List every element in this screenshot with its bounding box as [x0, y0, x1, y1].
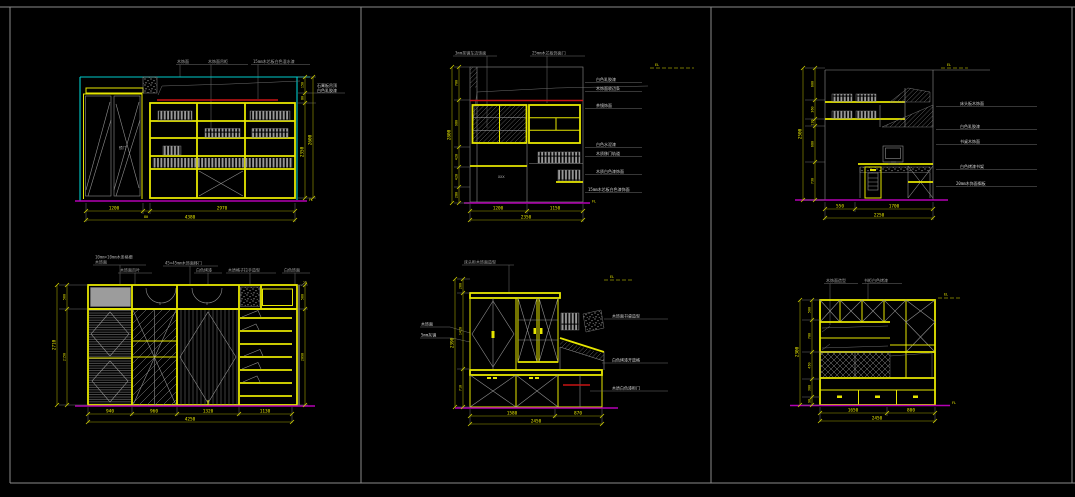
material-callouts: 白色乳胶漆 木饰面收边条 茶镜饰面 白色水泥漆 木质移门轨道 木质白色漆饰面 1…: [585, 76, 642, 193]
dim-overall: 2450: [531, 419, 542, 425]
annotation: 15mm木芯板白色漆饰面: [588, 186, 630, 192]
annotation: 白色乳胶漆: [596, 76, 616, 82]
dim: 960: [150, 409, 158, 415]
viewport-divider: [361, 7, 711, 483]
monitor: [883, 146, 903, 162]
dim: 550: [836, 204, 844, 210]
dim-overall: 2710: [52, 339, 58, 350]
dim: 560: [63, 294, 67, 300]
diamond-door: [178, 310, 238, 405]
dim: 1200: [493, 206, 504, 212]
dim-overall: 2390: [450, 337, 456, 348]
open-shelves: [240, 311, 292, 397]
dim: 260: [459, 283, 463, 289]
leaning-books: [890, 88, 930, 102]
dim: 680: [811, 141, 815, 147]
lower-cabinets: [470, 375, 602, 407]
dim: 1420: [459, 327, 463, 335]
annotation: 白色烤漆书架: [960, 163, 984, 169]
dim: 150: [301, 82, 305, 88]
dim: 700: [808, 333, 812, 339]
dim: 1650: [848, 408, 859, 414]
books: [561, 313, 579, 330]
dim: 2970: [217, 206, 228, 212]
elevation-bookshelf-a: 木饰面 木饰面吊柜 15mm木芯板白色混水漆 镜门 FL 1200 80 297…: [75, 58, 345, 222]
leaning-books: [882, 105, 933, 127]
annotation: 25mm木芯板饰面门: [532, 50, 566, 56]
dim: 450: [808, 362, 812, 368]
dim: 280: [455, 192, 459, 198]
annotation: 木饰面: [95, 259, 107, 265]
dim: 420: [455, 174, 459, 180]
dim: 600: [811, 81, 815, 87]
dim: 360: [811, 106, 815, 112]
dim: 940: [106, 409, 114, 415]
dim: 2600: [308, 134, 314, 145]
top-band: [470, 293, 560, 298]
cad-viewport[interactable]: 木饰面 木饰面吊柜 15mm木芯板白色混水漆 镜门 FL 1200 80 297…: [0, 0, 1075, 497]
annotation: 木质格子拉手造型: [228, 267, 260, 273]
annotation: 茶镜饰面: [596, 102, 612, 108]
books: [163, 146, 181, 155]
dim-overall: 2450: [872, 416, 883, 422]
dim: 730: [811, 178, 815, 184]
louver-door: [89, 310, 131, 404]
annotation: 白色烤漆: [196, 267, 212, 273]
dim-overall: 2300: [795, 346, 801, 357]
level-mark: EL: [947, 63, 951, 67]
floor-mark: FL: [952, 401, 956, 405]
books: [832, 111, 852, 119]
dim-overall: 2500: [798, 128, 804, 139]
textured-panel: [583, 310, 604, 332]
books: [158, 111, 192, 121]
annotation: 45×45mm木饰面移门: [165, 260, 202, 266]
annotation: 白色水泥漆: [596, 141, 616, 147]
annotation: 木饰面百叶: [120, 267, 140, 273]
books: [558, 170, 580, 181]
dim-overall: 2250: [874, 213, 885, 219]
level-mark: EL: [944, 293, 948, 297]
elevation-wardrobe-d: 10mm×10mm木条格栅 木饰面 木饰面百叶 45×45mm木饰面移门 白色烤…: [52, 254, 316, 425]
dim: 870: [574, 411, 582, 417]
dim: 300: [808, 385, 812, 391]
mid-band: [470, 370, 602, 375]
decor-mark: XXX: [498, 175, 505, 179]
annotation: 木饰面书桌造型: [612, 313, 640, 319]
dim: 710: [459, 385, 463, 391]
annotation: 20mm木饰面搁板: [956, 180, 986, 186]
annotation: 木质白色漆饰面: [596, 168, 624, 174]
dim: 130: [811, 119, 815, 125]
dim-overall: 4250: [185, 417, 196, 423]
annotation: 木饰面吊柜: [208, 58, 228, 64]
annotation: 木饰面造型: [826, 277, 846, 283]
textured-doors: [529, 105, 580, 143]
dim: 1130: [260, 409, 271, 415]
dim: 1200: [109, 206, 120, 212]
dim: 90: [808, 399, 812, 403]
annotation: 书桌木饰面: [960, 138, 980, 144]
level-mark: EL: [610, 275, 614, 279]
annotation: 床头柜木饰面造型: [464, 259, 496, 265]
books: [252, 129, 288, 138]
cad-canvas: 木饰面 木饰面吊柜 15mm木芯板白色混水漆 镜门 FL 1200 80 297…: [0, 0, 1075, 497]
annotation: 3mm茶镜车边饰面: [455, 50, 486, 56]
annotation: 木质白色漆柜门: [612, 385, 640, 391]
dim: 980: [455, 120, 459, 126]
ceiling-note: 白色乳胶漆: [317, 87, 337, 93]
annotation: 白色饰面: [284, 267, 300, 273]
books: [205, 129, 240, 138]
level-mark: EL: [655, 63, 659, 67]
dim: 1150: [550, 206, 561, 212]
annotation: 木质移门轨道: [596, 150, 620, 156]
books: [250, 111, 290, 121]
annotation: 木饰面: [177, 58, 189, 64]
bowl-arc: [146, 288, 176, 305]
elevation-cabinet-b: 3mm茶镜车边饰面 25mm木芯板饰面门 EL XXX FL 1200 1150…: [447, 50, 695, 223]
dim: 80: [144, 215, 148, 219]
annotation: 白色乳胶漆: [960, 123, 980, 129]
elevation-wardrobe-desk-e: 床头柜木饰面造型 EL 木饰面 5mm灰镜 260 1420 710 2390 …: [420, 259, 668, 427]
cd-rack: [152, 158, 293, 168]
dim: 1320: [203, 409, 214, 415]
dim: 1580: [507, 411, 518, 417]
annotation: 白色烤漆开放格: [612, 357, 640, 363]
dim: 700: [455, 80, 459, 86]
dim: 2350: [300, 146, 306, 157]
books: [856, 111, 876, 119]
dim: 420: [455, 154, 459, 160]
dim-overall: 2350: [521, 215, 532, 221]
dim-overall: 4380: [185, 215, 196, 221]
annotation: 木饰面: [421, 321, 433, 327]
dim: 800: [907, 408, 915, 414]
annotation: 5mm灰镜: [421, 332, 436, 338]
books: [856, 94, 876, 102]
material-callouts: 床头板木饰面 白色乳胶漆 书桌木饰面 白色烤漆书架 20mm木饰面搁板: [936, 100, 1037, 187]
books: [832, 94, 852, 102]
dim: 80: [301, 96, 305, 100]
annotation: 书柜白色烤漆: [864, 277, 888, 283]
floor-mark: FL: [592, 200, 596, 204]
annotation: 15mm木芯板白色混水漆: [253, 58, 295, 64]
bowl-arc: [192, 288, 222, 305]
panel-solid: [91, 288, 131, 307]
dim: 1700: [889, 204, 900, 210]
elevation-bed-wall-f: 木饰面造型 书柜白色烤漆 EL FL 500 700 450 300 90 23…: [790, 277, 962, 423]
dim: 2090: [301, 353, 305, 361]
dim: 560: [301, 294, 305, 300]
dim-overall: 2800: [447, 129, 453, 140]
elevation-desk-c: EL 600 360 130 680 730 2500 550 1700 225…: [795, 63, 1037, 220]
annotation: 木饰面收边条: [596, 85, 620, 91]
dim: 2150: [63, 353, 67, 361]
door-label: 镜门: [119, 145, 127, 150]
annotation: 床头板木饰面: [960, 100, 984, 106]
dim: 500: [808, 307, 812, 313]
books: [538, 152, 580, 163]
